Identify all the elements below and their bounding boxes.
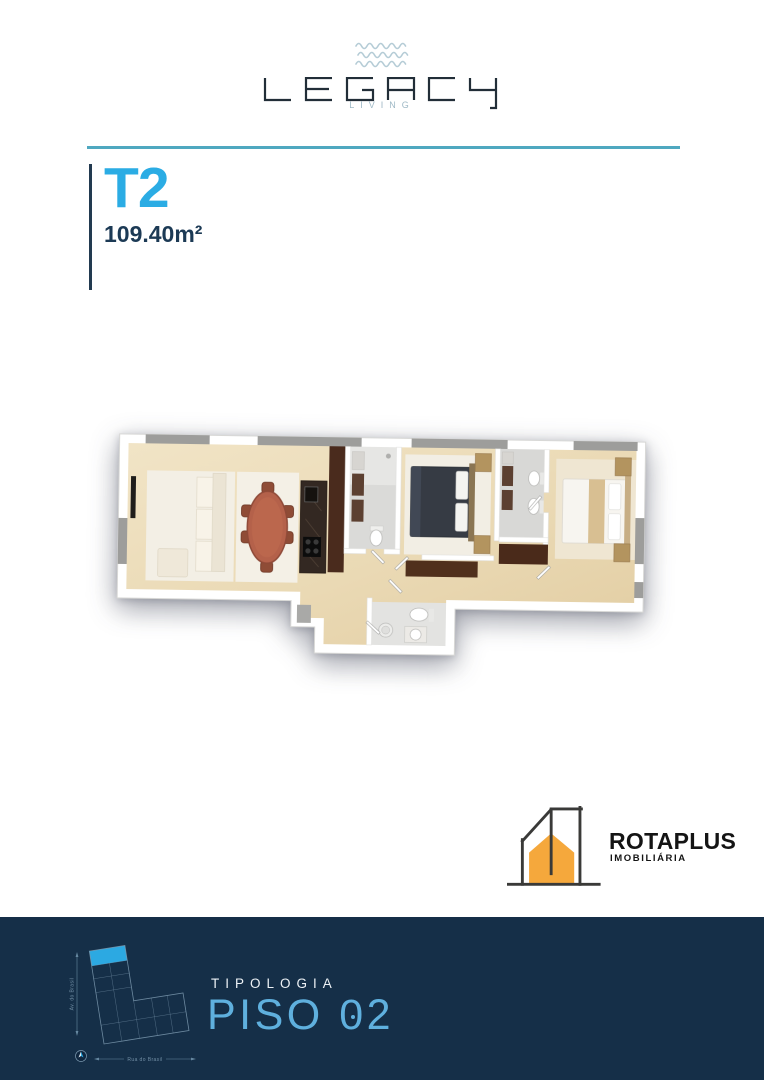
- wc-sink: [404, 626, 426, 642]
- floor-title-word: PISO: [207, 991, 339, 1039]
- bathroom-1: [344, 446, 402, 554]
- typology-eyebrow: TIPOLOGIA: [211, 976, 338, 991]
- cooktop: [303, 537, 321, 557]
- unit-type-label: T2: [104, 160, 169, 217]
- kitchen-island: [300, 481, 327, 573]
- nightstand-4: [614, 544, 630, 562]
- unit-area-label: 109.40m²: [104, 221, 202, 248]
- bedroom-2: [555, 457, 637, 562]
- floor-title-rest: 2: [367, 991, 394, 1039]
- agency-logo: ROTAPLUS IMOBILIÁRIA: [507, 795, 722, 893]
- bidet: [528, 471, 544, 486]
- nightstand-3: [615, 458, 631, 476]
- site-plan-minimap: Av. do Brasil Rua do Brasil: [68, 928, 208, 1078]
- bath2-cabinet: [502, 466, 513, 486]
- wardrobe-2: [499, 544, 548, 565]
- toilet-3: [410, 608, 434, 622]
- footer-band: Av. do Brasil Rua do Brasil TIPOLOGIA PI…: [0, 917, 764, 1080]
- bedroom1-dresser: [406, 560, 478, 577]
- compass-icon: [76, 1051, 87, 1062]
- dining-area: [235, 472, 299, 583]
- agency-building-house-icon: [507, 795, 603, 890]
- hall-wardrobe: [328, 446, 346, 572]
- unit-accent-bar: [89, 164, 92, 290]
- floorplan-image: [108, 424, 652, 668]
- bath1-cabinet: [352, 474, 364, 496]
- bathroom-2: [499, 449, 550, 565]
- nightstand: [475, 453, 491, 471]
- bath1-counter: [352, 452, 364, 470]
- floor-title-zero: 0: [339, 994, 366, 1037]
- kitchen-sink: [305, 487, 318, 502]
- svg-text:Av. do Brasil: Av. do Brasil: [70, 978, 76, 1011]
- svg-text:Rua do Brasil: Rua do Brasil: [127, 1057, 162, 1063]
- bed-light: [562, 475, 631, 548]
- minimap-highlight-unit: [89, 946, 127, 966]
- agency-descriptor: IMOBILIÁRIA: [610, 853, 687, 864]
- waves-icon: [354, 40, 410, 72]
- bath2-cabinet-2: [502, 490, 513, 510]
- washer: [379, 623, 393, 637]
- street-label-bottom: Rua do Brasil: [94, 1057, 196, 1063]
- brand-tagline: LIVING: [0, 100, 764, 110]
- agency-name: ROTAPLUS: [609, 828, 736, 855]
- nightstand-2: [474, 535, 490, 553]
- street-label-left: Av. do Brasil: [70, 952, 79, 1036]
- bed-dark: [410, 462, 475, 541]
- bath1-cabinet-2: [351, 500, 363, 522]
- header-divider: [87, 146, 680, 149]
- tv-unit: [130, 476, 136, 518]
- floor-title: PISO 02: [207, 994, 394, 1037]
- wc: [366, 598, 446, 646]
